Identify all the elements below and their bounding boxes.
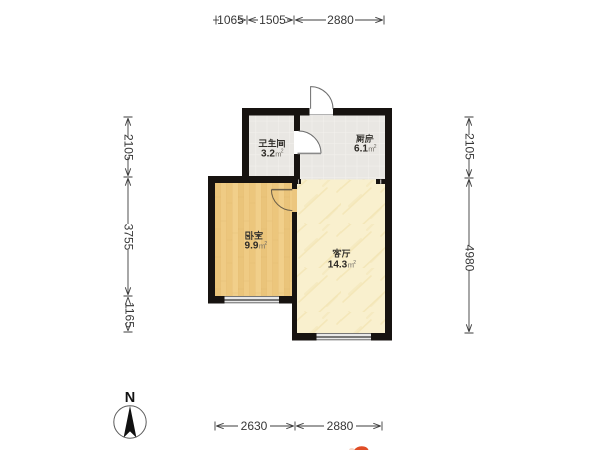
svg-text:3755: 3755 <box>122 224 136 251</box>
svg-text:2880: 2880 <box>327 419 354 433</box>
svg-text:1165: 1165 <box>123 302 137 328</box>
svg-text:N: N <box>125 390 135 406</box>
svg-text:3.2: 3.2 <box>261 148 275 159</box>
svg-text:2630: 2630 <box>241 419 268 433</box>
svg-text:4980: 4980 <box>463 245 477 272</box>
svg-text:2: 2 <box>264 241 267 247</box>
svg-text:9.9: 9.9 <box>245 241 259 252</box>
svg-text:6.1: 6.1 <box>354 144 368 155</box>
svg-text:1065: 1065 <box>217 13 244 27</box>
svg-text:2: 2 <box>353 260 356 266</box>
svg-text:2: 2 <box>374 144 377 150</box>
svg-text:2: 2 <box>281 149 284 155</box>
svg-text:2105: 2105 <box>122 134 136 161</box>
svg-text:2880: 2880 <box>327 13 354 27</box>
svg-text:14.3: 14.3 <box>328 260 348 271</box>
svg-text:2105: 2105 <box>463 133 477 160</box>
svg-text:1505: 1505 <box>259 13 286 27</box>
